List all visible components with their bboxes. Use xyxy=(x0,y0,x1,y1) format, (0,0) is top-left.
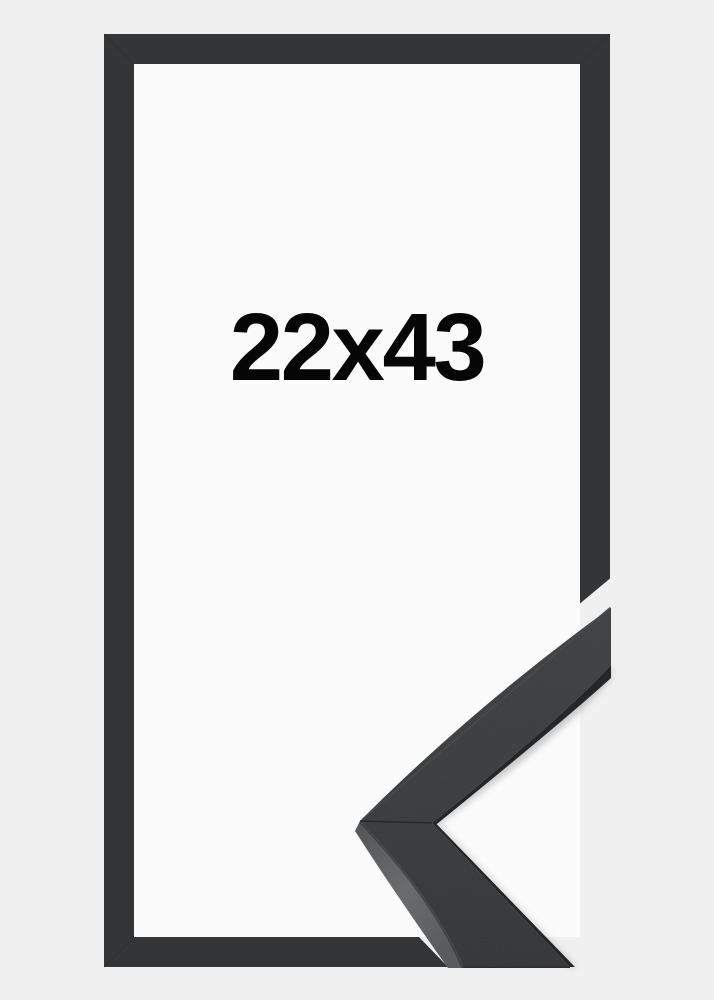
svg-text:22x43: 22x43 xyxy=(230,294,484,401)
